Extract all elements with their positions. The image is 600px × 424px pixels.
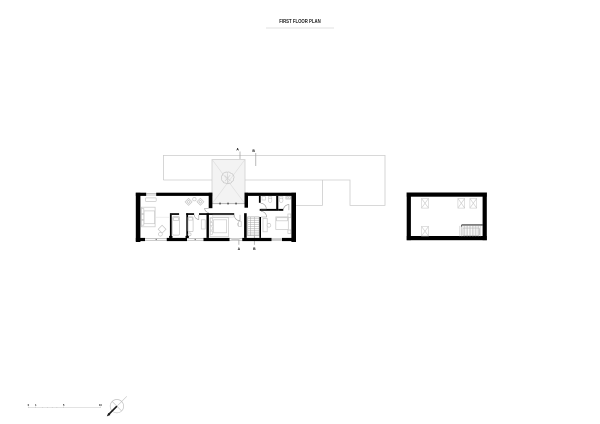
svg-text:0: 0 xyxy=(28,403,30,407)
svg-text:B: B xyxy=(252,149,255,153)
svg-text:5: 5 xyxy=(63,403,65,407)
svg-text:FIRST FLOOR PLAN: FIRST FLOOR PLAN xyxy=(279,19,321,25)
svg-text:A: A xyxy=(238,247,241,251)
svg-text:A: A xyxy=(236,148,239,152)
svg-text:B: B xyxy=(253,247,256,251)
svg-text:1: 1 xyxy=(35,403,37,407)
svg-text:10: 10 xyxy=(99,403,103,407)
